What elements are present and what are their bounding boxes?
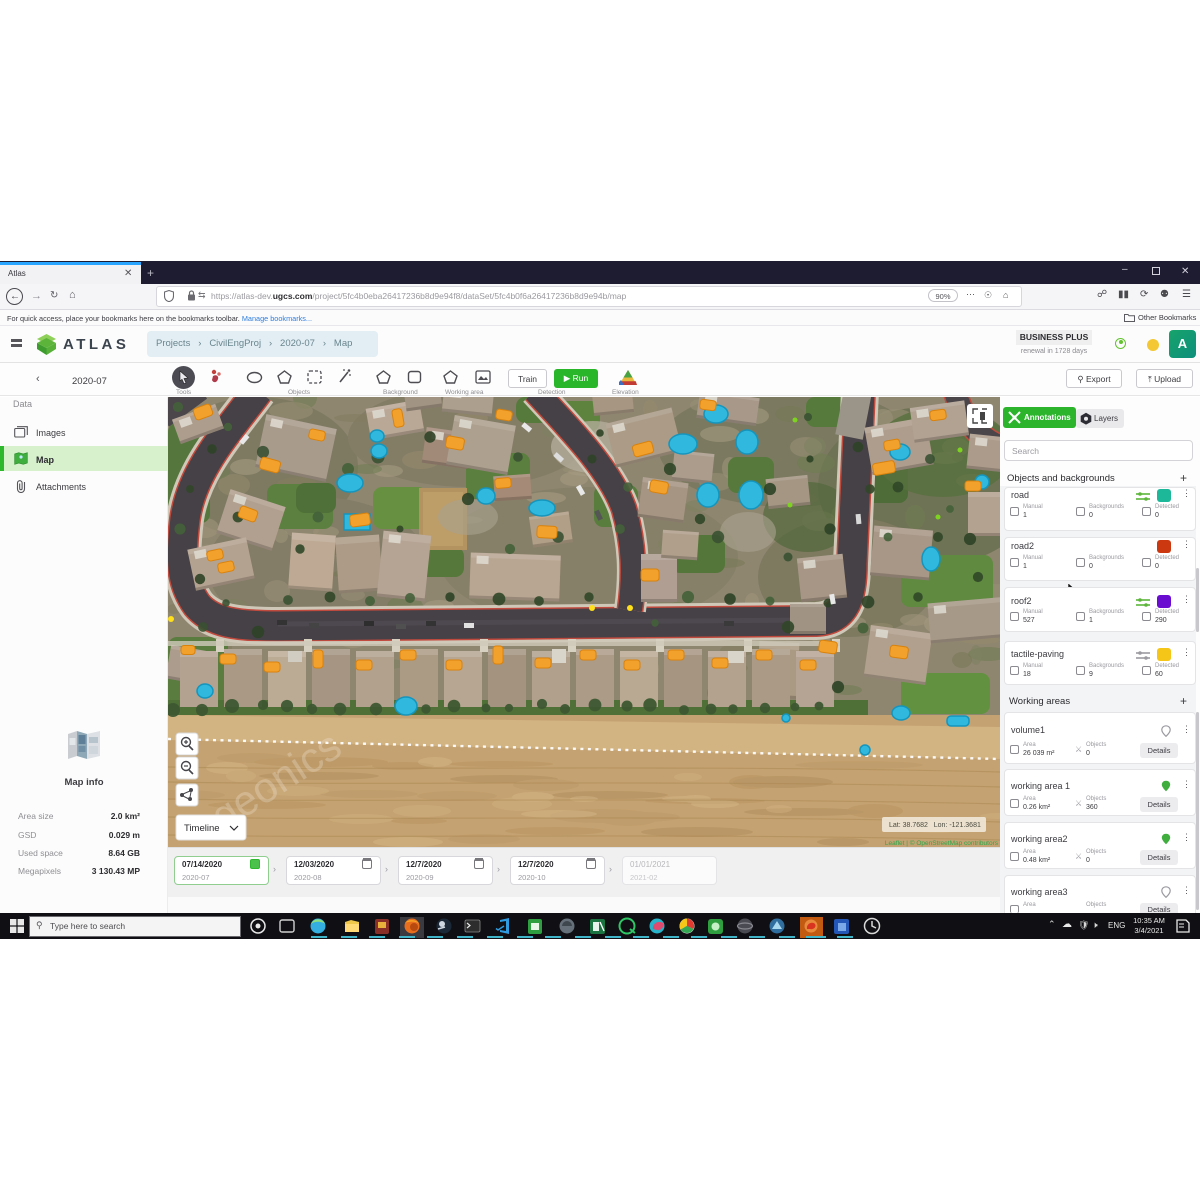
svg-text:Timeline: Timeline	[184, 823, 220, 834]
svg-text:Lat: 38.7682 Lon: -121.3681: Lat: 38.7682 Lon: -121.3681	[889, 822, 981, 829]
svg-text:Leaflet | © OpenStreetMap cont: Leaflet | © OpenStreetMap contributors	[885, 839, 999, 847]
